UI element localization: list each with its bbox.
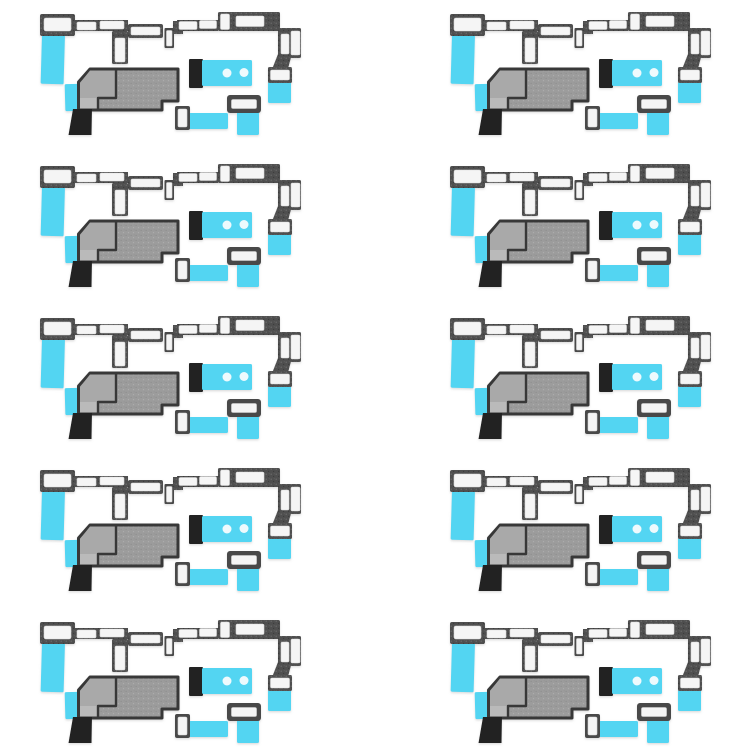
sticker-set-grid: [40, 12, 711, 743]
adhesive-sticker-sheet-photo: [0, 0, 750, 750]
sticker-set-8: [450, 468, 711, 591]
sticker-set-10: [450, 620, 711, 743]
sticker-set-4: [450, 164, 711, 287]
product-image: [0, 0, 750, 750]
sticker-set-6: [450, 316, 711, 439]
sticker-set-1: [40, 12, 301, 135]
sticker-set-9: [40, 620, 301, 743]
sticker-set-7: [40, 468, 301, 591]
sticker-set-2: [450, 12, 711, 135]
sticker-set-5: [40, 316, 301, 439]
sticker-set-3: [40, 164, 301, 287]
